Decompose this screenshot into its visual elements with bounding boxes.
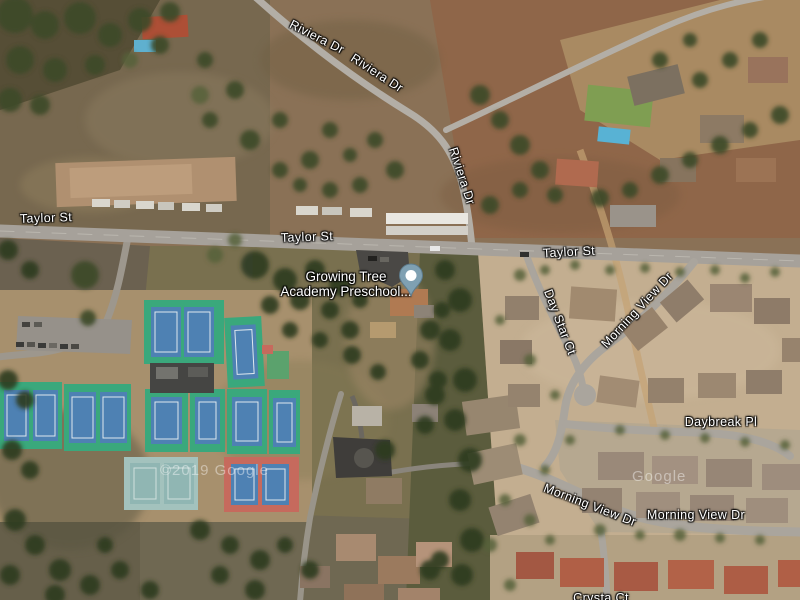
graded-dirt-pad xyxy=(55,157,236,207)
satellite-imagery xyxy=(0,0,800,600)
place-marker-pin[interactable] xyxy=(398,263,424,297)
satellite-map[interactable]: ©2019 Google Google Riviera Dr Riviera D… xyxy=(0,0,800,600)
poi-label-line2: Academy Preschool... xyxy=(280,284,411,299)
poi-label-line1: Growing Tree xyxy=(280,269,411,284)
poi-label-growing-tree-academy[interactable]: Growing Tree Academy Preschool... xyxy=(280,269,411,299)
